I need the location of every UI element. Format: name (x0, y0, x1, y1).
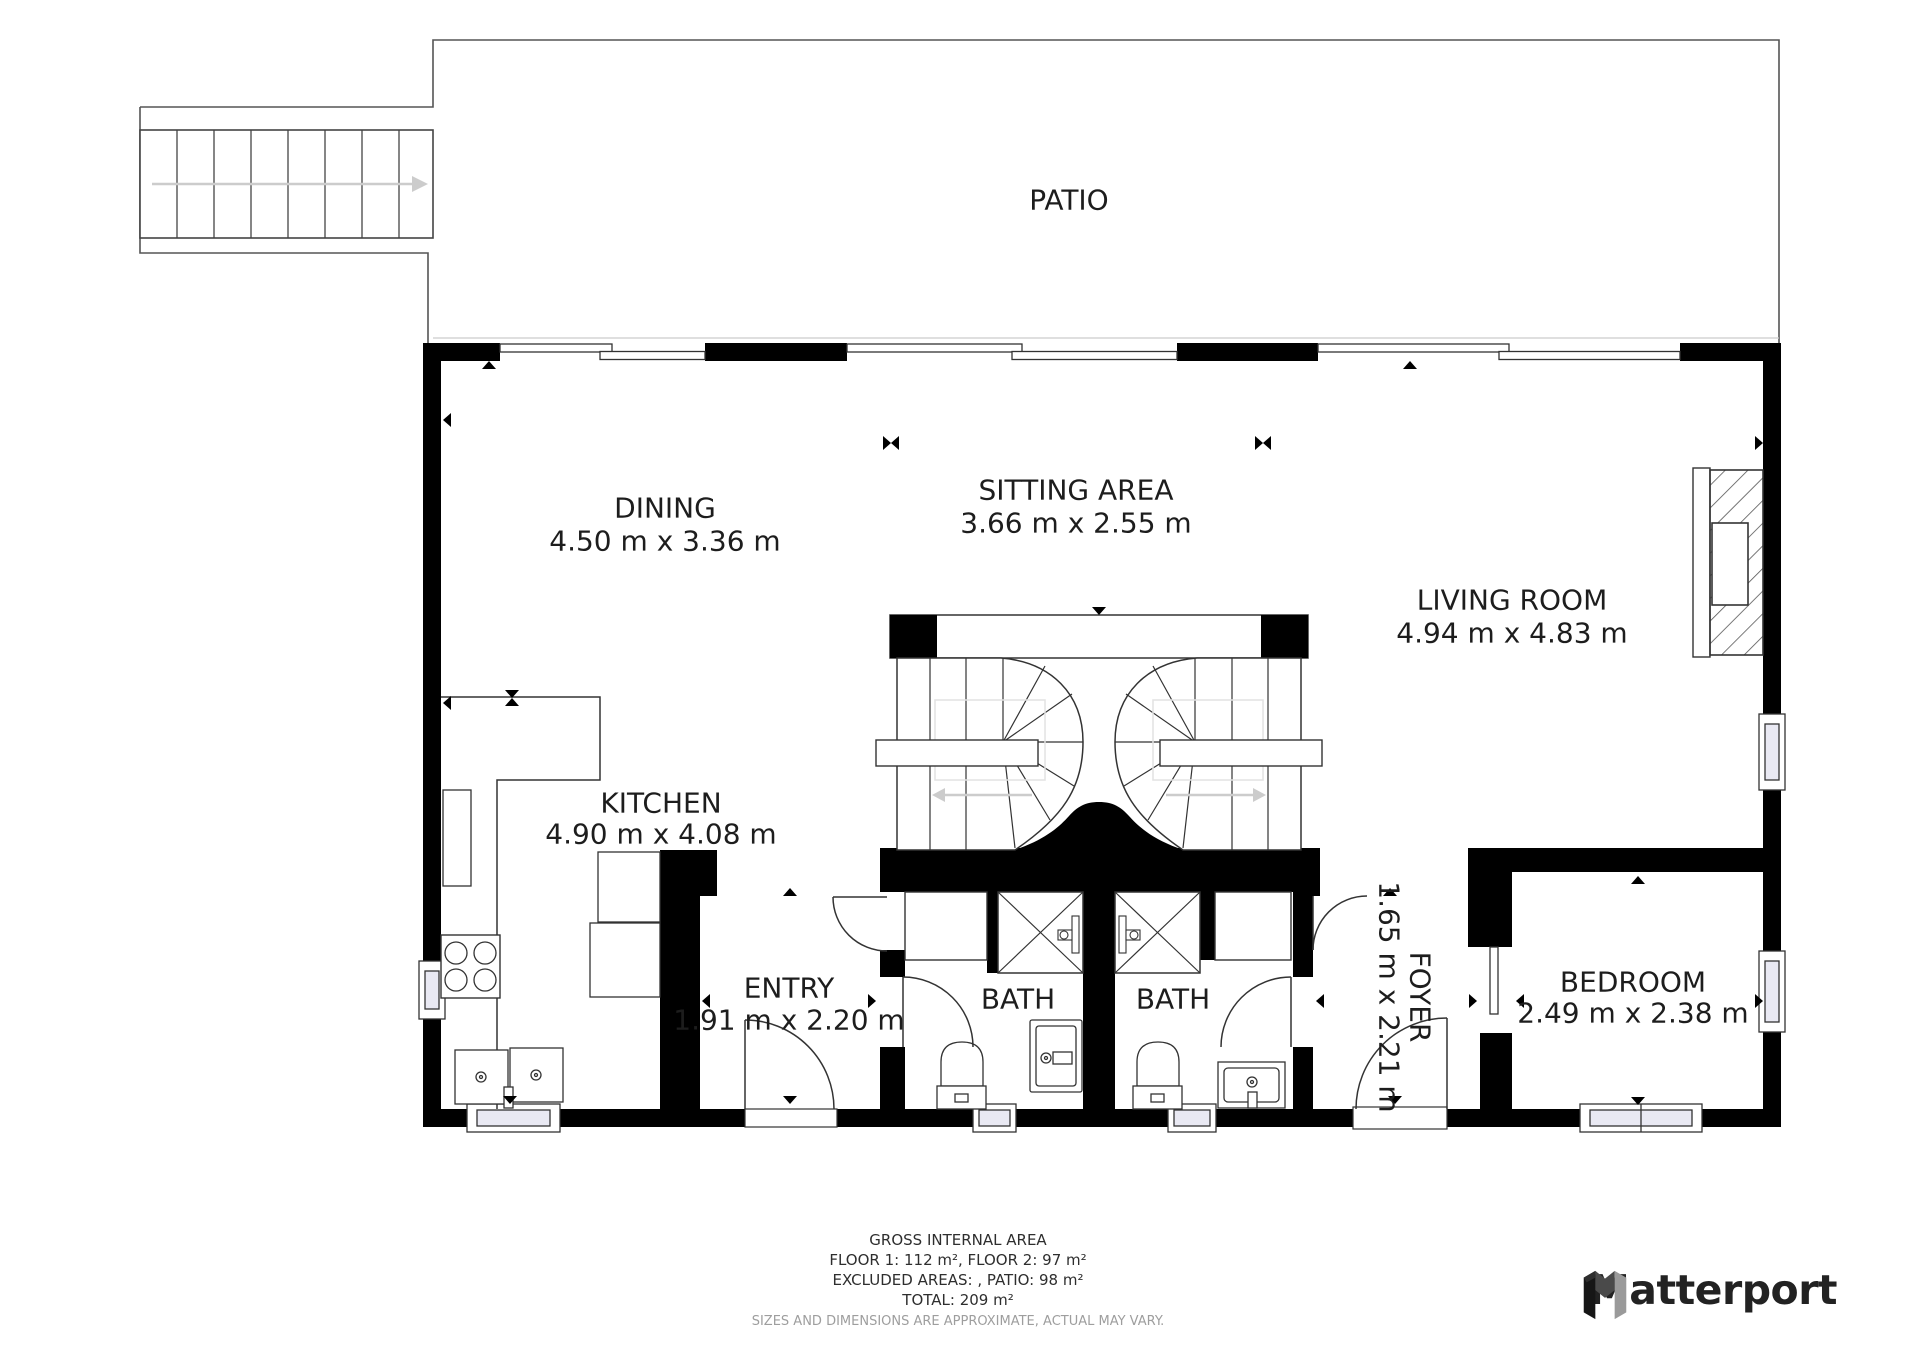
room-dims-living: 4.94 m x 4.83 m (1396, 617, 1627, 650)
room-label-bath2: BATH (1136, 983, 1210, 1016)
stove (441, 935, 500, 998)
room-label-bedroom: BEDROOM (1560, 966, 1706, 999)
top-sliding-windows (500, 344, 1680, 360)
room-dims-entry: 1.91 m x 2.20 m (673, 1004, 904, 1037)
exterior-stairs (140, 130, 433, 238)
floor-areas: FLOOR 1: 112 m², FLOOR 2: 97 m² (658, 1250, 1258, 1270)
room-label-patio: PATIO (1029, 184, 1108, 217)
closet-entry (905, 892, 987, 960)
shower-1 (998, 892, 1083, 973)
excluded-areas: EXCLUDED AREAS: , PATIO: 98 m² (658, 1270, 1258, 1290)
matterport-logo: Matterport (1576, 1266, 1837, 1314)
bedroom-pocket-door (1490, 947, 1498, 1014)
entry-closet-door (833, 897, 887, 951)
bath1-door (903, 977, 973, 1047)
floorplan-page: PATIO DINING 4.50 m x 3.36 m SITTING ARE… (0, 0, 1920, 1357)
room-label-living: LIVING ROOM (1417, 584, 1608, 617)
room-label-entry: ENTRY (744, 972, 835, 1005)
room-label-kitchen: KITCHEN (600, 787, 721, 820)
area-summary: GROSS INTERNAL AREA FLOOR 1: 112 m², FLO… (658, 1230, 1258, 1332)
room-label-foyer: FOYER (1404, 952, 1437, 1043)
room-dims-sitting: 3.66 m x 2.55 m (960, 507, 1191, 540)
disclaimer: SIZES AND DIMENSIONS ARE APPROXIMATE, AC… (658, 1312, 1258, 1332)
bathtub (1030, 1020, 1082, 1092)
floorplan-drawing: PATIO DINING 4.50 m x 3.36 m SITTING ARE… (0, 0, 1920, 1357)
foyer-interior-door (1313, 896, 1367, 950)
gross-internal-area-title: GROSS INTERNAL AREA (658, 1230, 1258, 1250)
room-dims-dining: 4.50 m x 3.36 m (549, 525, 780, 558)
toilet-2 (1133, 1042, 1182, 1109)
room-label-bath1: BATH (981, 983, 1055, 1016)
closet-foyer (1215, 892, 1291, 960)
room-label-dining: DINING (614, 492, 716, 525)
shower-2 (1115, 892, 1200, 973)
room-dims-bedroom: 2.49 m x 2.38 m (1517, 997, 1748, 1030)
toilet-1 (937, 1042, 986, 1109)
room-dims-foyer: 1.65 m x 2.21 m (1373, 881, 1406, 1112)
kitchen-fixtures (441, 697, 660, 1109)
room-label-sitting: SITTING AREA (978, 474, 1173, 507)
vanity-sink (1218, 1062, 1285, 1108)
room-dims-kitchen: 4.90 m x 4.08 m (545, 818, 776, 851)
bath2-door (1221, 977, 1291, 1047)
matterport-icon (1576, 1266, 1634, 1324)
total-area: TOTAL: 209 m² (658, 1290, 1258, 1310)
fireplace (1693, 468, 1763, 657)
